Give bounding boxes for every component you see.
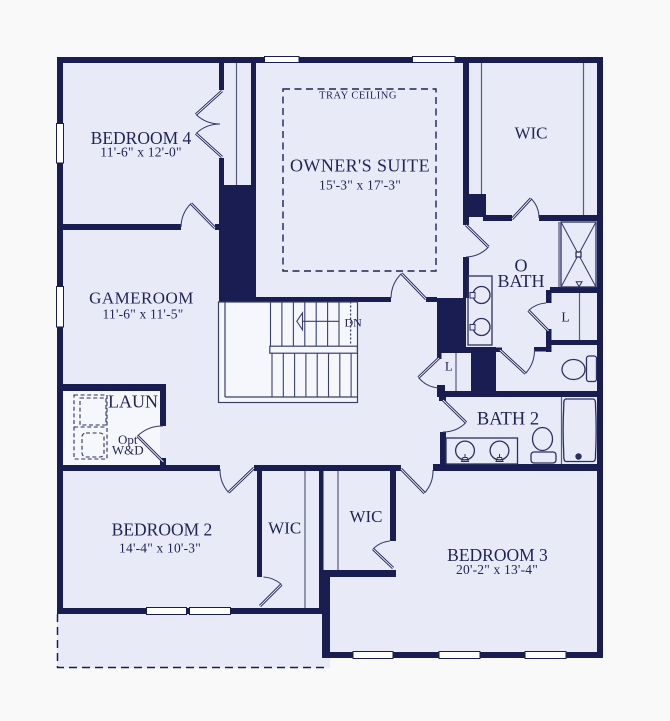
svg-text:WIC: WIC: [268, 519, 301, 538]
svg-text:OWNER'S SUITE: OWNER'S SUITE: [290, 156, 430, 176]
svg-text:WIC: WIC: [349, 507, 382, 526]
svg-text:DN: DN: [345, 316, 363, 330]
svg-text:BATH: BATH: [497, 271, 544, 291]
svg-text:TRAY CEILING: TRAY CEILING: [319, 91, 397, 102]
svg-text:W&D: W&D: [112, 443, 144, 458]
svg-text:20'-2" x 13'-4": 20'-2" x 13'-4": [456, 562, 538, 577]
svg-text:L: L: [445, 359, 453, 374]
svg-text:LAUN: LAUN: [108, 391, 158, 411]
svg-text:L: L: [561, 310, 569, 325]
svg-text:BEDROOM 2: BEDROOM 2: [112, 520, 213, 540]
svg-text:14'-4" x 10'-3": 14'-4" x 10'-3": [119, 541, 201, 556]
svg-text:11'-6" x 12'-0": 11'-6" x 12'-0": [100, 144, 181, 159]
svg-text:BATH 2: BATH 2: [477, 409, 539, 429]
svg-text:WIC: WIC: [514, 124, 547, 143]
svg-text:15'-3" x 17'-3": 15'-3" x 17'-3": [319, 178, 401, 193]
svg-text:11'-6" x 11'-5": 11'-6" x 11'-5": [103, 307, 184, 322]
svg-text:GAMEROOM: GAMEROOM: [89, 289, 194, 308]
